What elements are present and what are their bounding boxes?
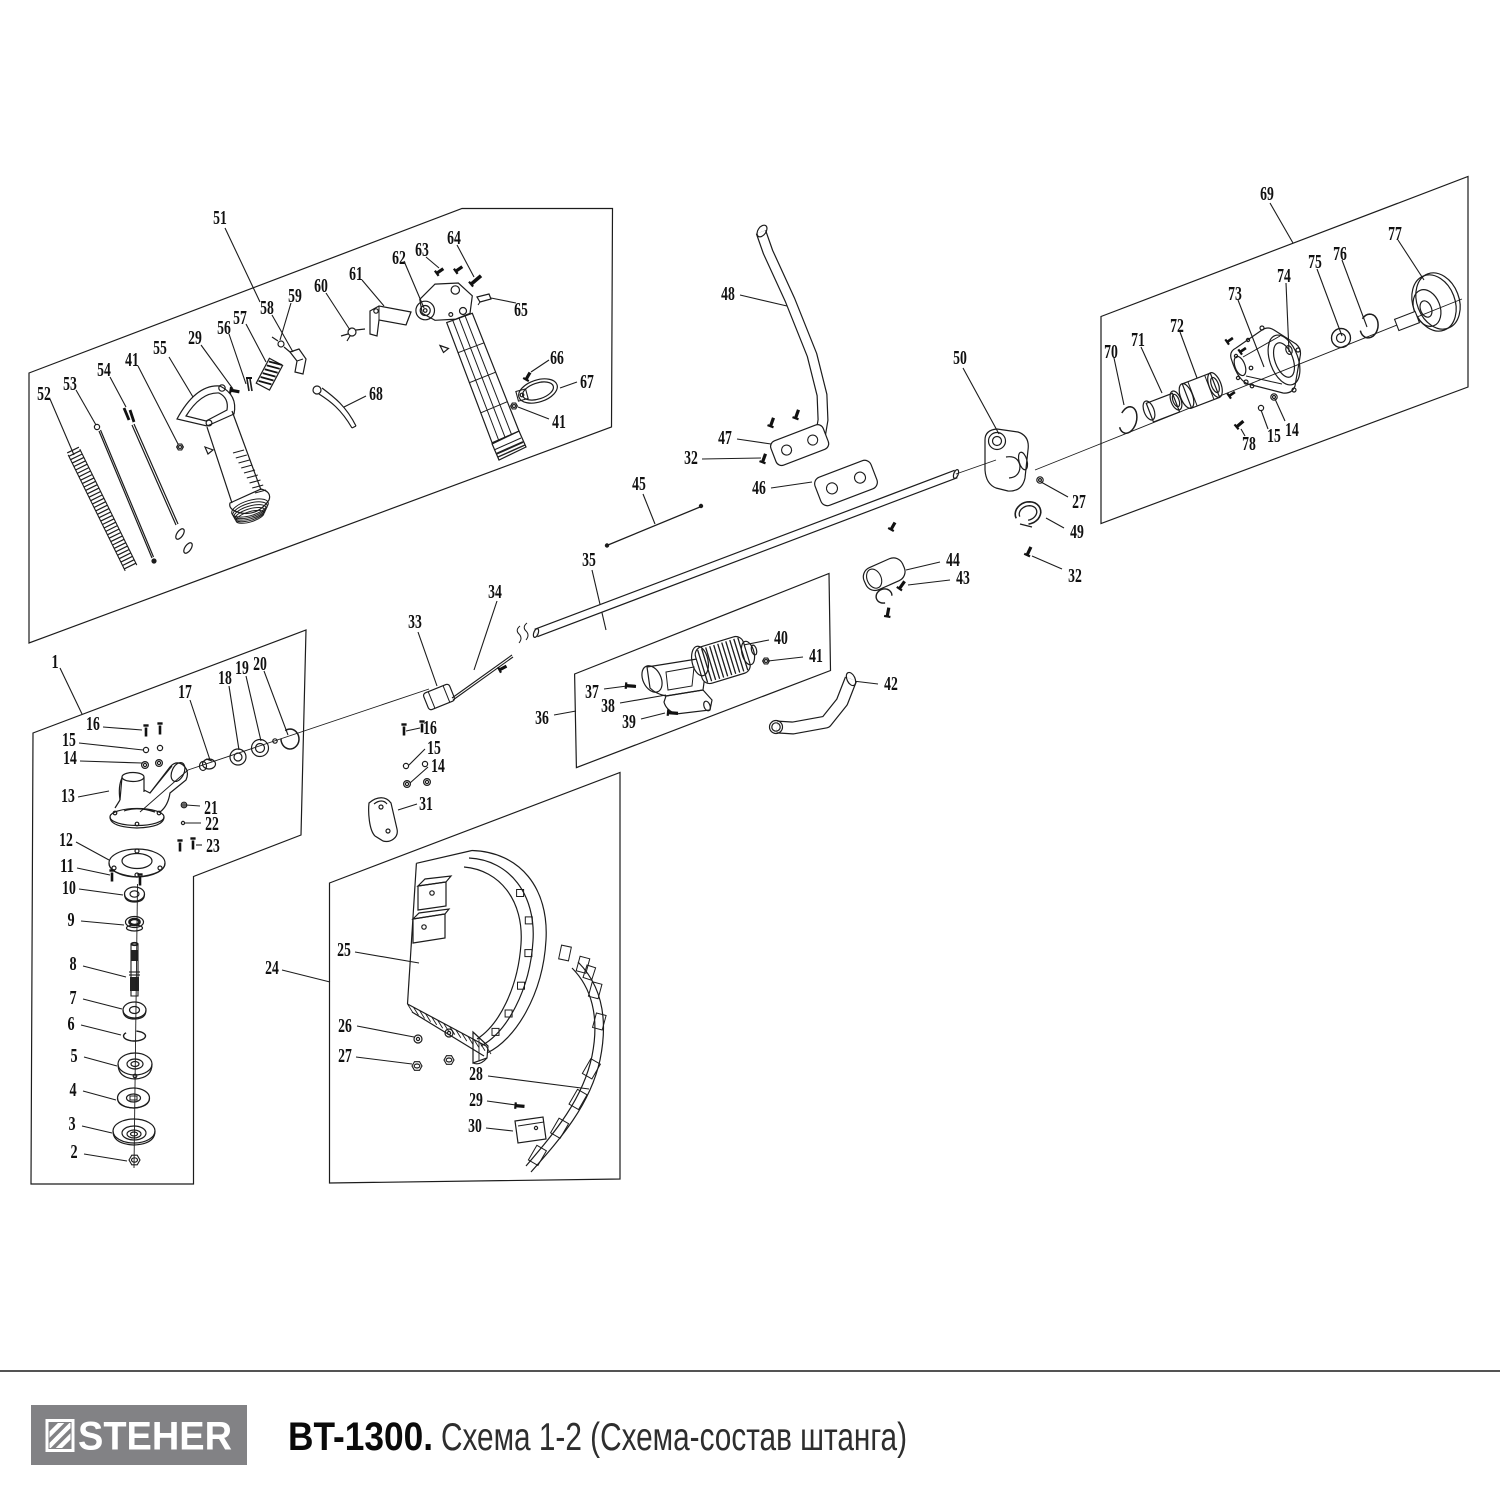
svg-text:12: 12 xyxy=(59,830,73,851)
svg-text:41: 41 xyxy=(809,646,823,667)
svg-text:71: 71 xyxy=(1131,330,1145,351)
svg-text:72: 72 xyxy=(1170,316,1184,337)
svg-text:7: 7 xyxy=(69,988,76,1009)
svg-text:42: 42 xyxy=(884,674,898,695)
svg-text:53: 53 xyxy=(63,374,77,395)
svg-text:41: 41 xyxy=(125,350,139,371)
svg-text:66: 66 xyxy=(550,348,564,369)
svg-text:26: 26 xyxy=(338,1016,352,1037)
svg-text:Схема 1-2 (Схема-состав штанга: Схема 1-2 (Схема-состав штанга) xyxy=(441,1416,907,1459)
svg-text:32: 32 xyxy=(684,448,698,469)
svg-text:43: 43 xyxy=(956,568,970,589)
svg-text:29: 29 xyxy=(188,328,202,349)
svg-text:67: 67 xyxy=(580,372,594,393)
svg-text:8: 8 xyxy=(69,954,76,975)
svg-text:34: 34 xyxy=(488,582,502,603)
svg-text:14: 14 xyxy=(63,748,77,769)
svg-text:9: 9 xyxy=(67,910,74,931)
svg-text:3: 3 xyxy=(68,1114,75,1135)
svg-text:52: 52 xyxy=(37,384,51,405)
svg-text:15: 15 xyxy=(1267,426,1281,447)
svg-text:17: 17 xyxy=(178,682,192,703)
svg-text:78: 78 xyxy=(1242,434,1256,455)
svg-text:16: 16 xyxy=(423,718,437,739)
svg-text:10: 10 xyxy=(62,878,76,899)
svg-text:25: 25 xyxy=(337,940,351,961)
svg-text:60: 60 xyxy=(314,276,328,297)
svg-text:29: 29 xyxy=(469,1090,483,1111)
svg-text:14: 14 xyxy=(1285,420,1299,441)
svg-text:1: 1 xyxy=(51,652,58,673)
svg-text:16: 16 xyxy=(86,714,100,735)
svg-text:73: 73 xyxy=(1228,284,1242,305)
svg-text:19: 19 xyxy=(235,658,249,679)
svg-text:14: 14 xyxy=(431,756,445,777)
svg-text:40: 40 xyxy=(774,628,788,649)
svg-text:65: 65 xyxy=(514,300,528,321)
svg-text:69: 69 xyxy=(1260,184,1274,205)
svg-text:57: 57 xyxy=(233,308,247,329)
svg-text:32: 32 xyxy=(1068,566,1082,587)
svg-text:35: 35 xyxy=(582,550,596,571)
svg-text:30: 30 xyxy=(468,1116,482,1137)
svg-text:47: 47 xyxy=(718,428,732,449)
svg-text:54: 54 xyxy=(97,360,111,381)
svg-text:27: 27 xyxy=(1072,492,1086,513)
svg-text:BT-1300.: BT-1300. xyxy=(288,1415,433,1459)
svg-text:46: 46 xyxy=(752,478,766,499)
svg-text:45: 45 xyxy=(632,474,646,495)
svg-text:48: 48 xyxy=(721,284,735,305)
svg-text:28: 28 xyxy=(469,1064,483,1085)
svg-text:76: 76 xyxy=(1333,244,1347,265)
svg-text:11: 11 xyxy=(60,856,74,877)
svg-text:33: 33 xyxy=(408,612,422,633)
svg-text:39: 39 xyxy=(622,712,636,733)
svg-text:64: 64 xyxy=(447,228,461,249)
svg-text:6: 6 xyxy=(67,1014,74,1035)
svg-text:77: 77 xyxy=(1388,224,1402,245)
svg-text:5: 5 xyxy=(70,1046,77,1067)
svg-text:68: 68 xyxy=(369,384,383,405)
svg-text:37: 37 xyxy=(585,682,599,703)
svg-text:74: 74 xyxy=(1277,266,1291,287)
svg-text:13: 13 xyxy=(61,786,75,807)
svg-text:70: 70 xyxy=(1104,342,1118,363)
svg-text:24: 24 xyxy=(265,958,279,979)
svg-text:55: 55 xyxy=(153,338,167,359)
svg-text:62: 62 xyxy=(392,248,406,269)
svg-text:27: 27 xyxy=(338,1046,352,1067)
svg-text:4: 4 xyxy=(69,1080,76,1101)
svg-text:22: 22 xyxy=(205,814,219,835)
svg-text:18: 18 xyxy=(218,668,232,689)
svg-text:31: 31 xyxy=(419,794,433,815)
svg-text:50: 50 xyxy=(953,348,967,369)
svg-text:41: 41 xyxy=(552,412,566,433)
svg-text:56: 56 xyxy=(217,318,231,339)
svg-text:2: 2 xyxy=(70,1142,77,1163)
svg-text:STEHER: STEHER xyxy=(78,1415,232,1459)
svg-text:38: 38 xyxy=(601,696,615,717)
svg-text:23: 23 xyxy=(206,836,220,857)
svg-text:36: 36 xyxy=(535,708,549,729)
svg-text:75: 75 xyxy=(1308,252,1322,273)
svg-text:49: 49 xyxy=(1070,522,1084,543)
svg-text:61: 61 xyxy=(349,264,363,285)
svg-text:51: 51 xyxy=(213,208,227,229)
